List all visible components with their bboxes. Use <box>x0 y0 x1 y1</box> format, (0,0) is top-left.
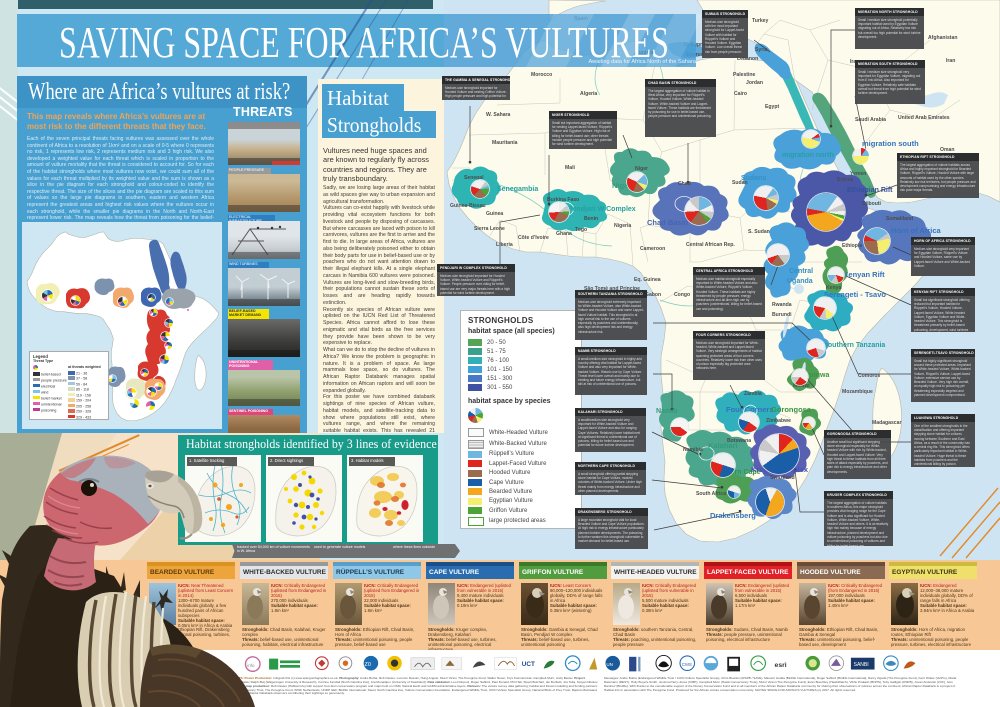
svg-text:Mali: Mali <box>565 165 575 171</box>
svg-text:Drakensberg: Drakensberg <box>710 511 756 520</box>
svg-text:Swaziland: Swaziland <box>770 475 795 481</box>
svg-text:Chad Basin: Chad Basin <box>647 218 689 227</box>
svg-text:UN: UN <box>606 662 613 667</box>
svg-text:W. Sahara: W. Sahara <box>486 112 511 118</box>
svg-text:CMS: CMS <box>682 662 692 667</box>
svg-text:Ghana: Ghana <box>556 231 572 237</box>
svg-text:Mauritania: Mauritania <box>492 140 518 146</box>
svg-text:Liberia: Liberia <box>496 242 513 248</box>
svg-text:Namib: Namib <box>656 408 677 415</box>
svg-text:Yemen: Yemen <box>850 171 866 177</box>
svg-text:Afghanistan: Afghanistan <box>928 35 957 41</box>
svg-text:United Arab Emirates: United Arab Emirates <box>898 115 950 121</box>
svg-text:Kenyan Rift: Kenyan Rift <box>843 270 885 279</box>
svg-text:Rwanda: Rwanda <box>772 302 792 308</box>
svg-text:Togo: Togo <box>575 227 587 233</box>
svg-text:Zambia: Zambia <box>744 391 762 397</box>
svg-text:esri: esri <box>775 662 787 669</box>
svg-text:South Africa: South Africa <box>696 491 726 497</box>
svg-text:Eritrea: Eritrea <box>837 177 853 183</box>
svg-text:Cairo: Cairo <box>734 91 747 97</box>
svg-text:Burundi: Burundi <box>772 312 792 318</box>
svg-text:S. Sudan: S. Sudan <box>748 229 770 235</box>
svg-text:migration north: migration north <box>782 152 834 159</box>
svg-text:Sierra Leone: Sierra Leone <box>474 226 505 232</box>
svg-text:Guinea: Guinea <box>486 211 503 217</box>
svg-text:Chad: Chad <box>678 181 691 187</box>
svg-text:Morocco: Morocco <box>531 72 552 78</box>
svg-text:Algeria: Algeria <box>580 91 597 97</box>
svg-text:Congo: Congo <box>674 292 690 298</box>
svg-text:SANBI: SANBI <box>854 662 869 668</box>
svg-text:Z0: Z0 <box>365 662 371 668</box>
svg-text:Zimbabwe: Zimbabwe <box>766 418 791 424</box>
svg-text:Uganda: Uganda <box>787 278 813 285</box>
svg-text:Syria: Syria <box>755 47 768 53</box>
svg-text:Mozambique: Mozambique <box>842 389 873 395</box>
svg-text:Eq. Guinea: Eq. Guinea <box>634 277 661 283</box>
svg-text:Comoros: Comoros <box>858 373 881 379</box>
svg-text:migration south: migration south <box>862 139 919 148</box>
svg-text:Pendjari W Complex: Pendjari W Complex <box>568 206 636 213</box>
svg-text:Egypt: Egypt <box>765 104 779 110</box>
svg-text:Benin: Benin <box>584 216 598 222</box>
svg-text:Namibia: Namibia <box>683 447 703 453</box>
svg-text:Djibouti: Djibouti <box>862 201 882 207</box>
svg-text:Turkey: Turkey <box>752 18 768 24</box>
svg-text:Saudi Arabia: Saudi Arabia <box>855 117 886 123</box>
svg-text:Serengeti - Tsavo: Serengeti - Tsavo <box>824 290 886 299</box>
svg-text:Gabon: Gabon <box>645 292 661 298</box>
svg-text:Guinea-Bissau: Guinea-Bissau <box>450 203 486 209</box>
svg-text:UCT: UCT <box>522 661 535 668</box>
svg-text:Sudans: Sudans <box>741 175 766 182</box>
svg-text:southern Tanzania: southern Tanzania <box>824 342 885 349</box>
svg-text:Horn of Africa: Horn of Africa <box>891 226 942 235</box>
svg-text:Madagascar: Madagascar <box>872 420 901 426</box>
svg-text:Senegambia: Senegambia <box>497 186 538 193</box>
svg-text:Central: Central <box>789 268 813 275</box>
svg-text:Ethiopia: Ethiopia <box>842 243 862 249</box>
svg-text:Somaliland: Somaliland <box>886 216 913 222</box>
svg-text:Ethiopian Rift: Ethiopian Rift <box>847 187 893 194</box>
svg-text:Nigeria: Nigeria <box>614 223 631 229</box>
svg-text:Kalahari: Kalahari <box>708 441 738 450</box>
svg-text:Gorongosa: Gorongosa <box>771 405 812 414</box>
svg-text:Jordan: Jordan <box>746 80 763 86</box>
svg-text:Central African Rep.: Central African Rep. <box>686 242 735 248</box>
svg-text:Cameroon: Cameroon <box>640 246 665 252</box>
svg-text:Palestine: Palestine <box>733 72 756 78</box>
svg-text:Côte d’Ivoire: Côte d’Ivoire <box>518 235 549 241</box>
svg-text:Iran: Iran <box>946 58 955 64</box>
